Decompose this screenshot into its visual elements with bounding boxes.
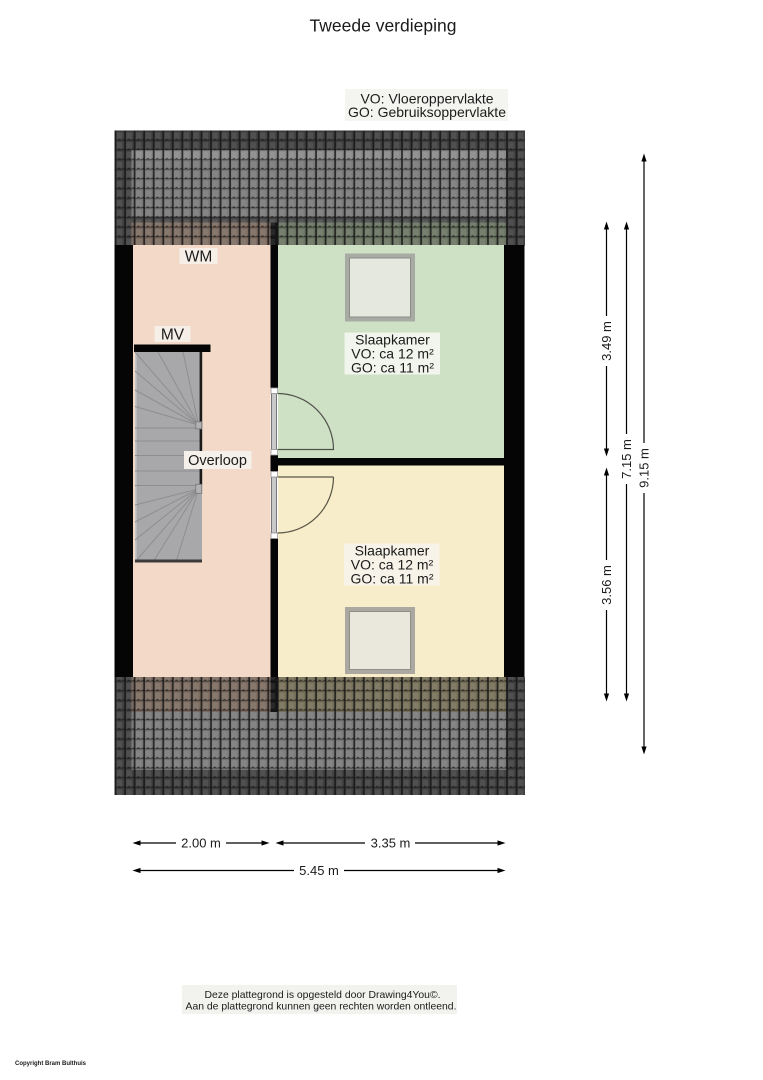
svg-text:Copyright Bram Bulthuis: Copyright Bram Bulthuis	[15, 1061, 87, 1067]
svg-text:GO: Gebruiksoppervlakte: GO: Gebruiksoppervlakte	[348, 104, 506, 120]
svg-text:5.45 m: 5.45 m	[299, 863, 339, 878]
svg-text:9.15 m: 9.15 m	[637, 448, 652, 488]
svg-text:Aan de plattegrond kunnen geen: Aan de plattegrond kunnen geen rechten w…	[186, 1002, 457, 1013]
svg-text:3.49 m: 3.49 m	[599, 321, 614, 361]
svg-text:Tweede verdieping: Tweede verdieping	[310, 16, 457, 36]
svg-text:3.56 m: 3.56 m	[599, 565, 614, 605]
svg-text:3.35 m: 3.35 m	[371, 836, 411, 851]
svg-text:2.00 m: 2.00 m	[181, 836, 221, 851]
svg-text:Overloop: Overloop	[188, 453, 247, 469]
svg-text:Deze plattegrond is opgesteld: Deze plattegrond is opgesteld door Drawi…	[204, 990, 440, 1001]
svg-text:GO: ca 11 m²: GO: ca 11 m²	[351, 571, 434, 587]
svg-text:MV: MV	[161, 327, 185, 344]
svg-text:WM: WM	[185, 249, 213, 266]
svg-text:7.15 m: 7.15 m	[619, 439, 634, 479]
svg-text:GO: ca 11 m²: GO: ca 11 m²	[351, 360, 434, 376]
